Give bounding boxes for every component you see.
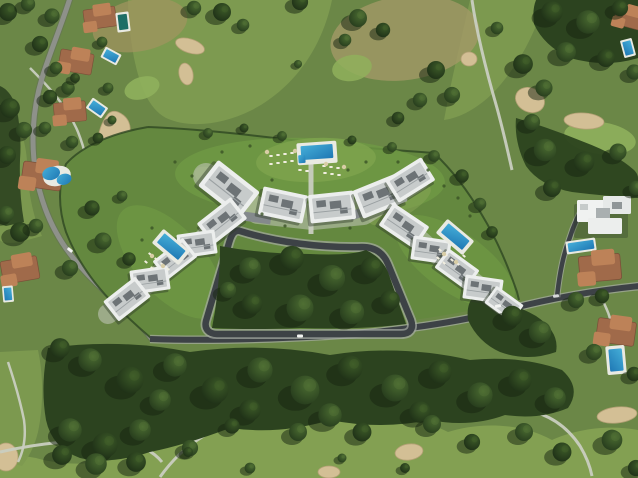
parasol xyxy=(265,150,269,154)
villa-pool xyxy=(115,11,131,32)
parasol xyxy=(293,149,297,153)
parasol xyxy=(150,254,154,258)
parasol xyxy=(161,264,165,268)
shrub xyxy=(456,196,459,199)
shrub xyxy=(426,168,429,171)
shrub xyxy=(348,226,351,229)
shrub xyxy=(270,178,273,181)
parasol xyxy=(324,162,328,166)
sun-lounger xyxy=(323,172,326,174)
shrub xyxy=(248,144,251,147)
sun-lounger xyxy=(269,155,272,157)
shrub xyxy=(283,224,286,227)
sun-lounger xyxy=(290,160,293,162)
sun-lounger xyxy=(298,169,301,171)
sun-lounger xyxy=(305,170,308,172)
aerial-photo-canvas xyxy=(0,0,638,478)
bunker xyxy=(461,52,477,66)
roof-terrace xyxy=(612,202,622,209)
modern-villa xyxy=(574,196,631,238)
shrub xyxy=(173,160,176,163)
villa-pool xyxy=(605,345,627,375)
shrub xyxy=(220,150,223,153)
parasol xyxy=(442,252,446,256)
shrub xyxy=(346,168,349,171)
shrub xyxy=(364,160,367,163)
kids-pool xyxy=(298,155,306,163)
sun-lounger xyxy=(329,166,332,168)
sun-lounger xyxy=(269,163,272,165)
sun-lounger xyxy=(290,152,293,154)
sun-lounger xyxy=(337,174,340,176)
apartment-block xyxy=(305,190,356,226)
shrub xyxy=(260,212,263,215)
shrub xyxy=(190,174,193,177)
shrub xyxy=(140,238,143,241)
roof-terrace xyxy=(596,208,610,218)
sun-lounger xyxy=(283,153,286,155)
shrub xyxy=(150,226,153,229)
roof-terrace xyxy=(580,204,588,210)
central-woodland xyxy=(212,246,406,330)
bunker xyxy=(318,466,340,478)
shrub xyxy=(396,160,399,163)
aerial-photo xyxy=(0,0,638,478)
car xyxy=(297,335,303,338)
sun-lounger xyxy=(276,162,279,164)
parasol xyxy=(342,165,346,169)
pool-water xyxy=(300,144,333,160)
north-pool xyxy=(296,141,337,166)
shrub xyxy=(468,214,471,217)
shrub xyxy=(442,184,445,187)
sun-lounger xyxy=(330,173,333,175)
parasol xyxy=(454,260,458,264)
sun-lounger xyxy=(283,161,286,163)
sun-lounger xyxy=(276,154,279,156)
villa-roof xyxy=(588,218,622,234)
villa-pool xyxy=(2,285,14,302)
sun-lounger xyxy=(336,167,339,169)
